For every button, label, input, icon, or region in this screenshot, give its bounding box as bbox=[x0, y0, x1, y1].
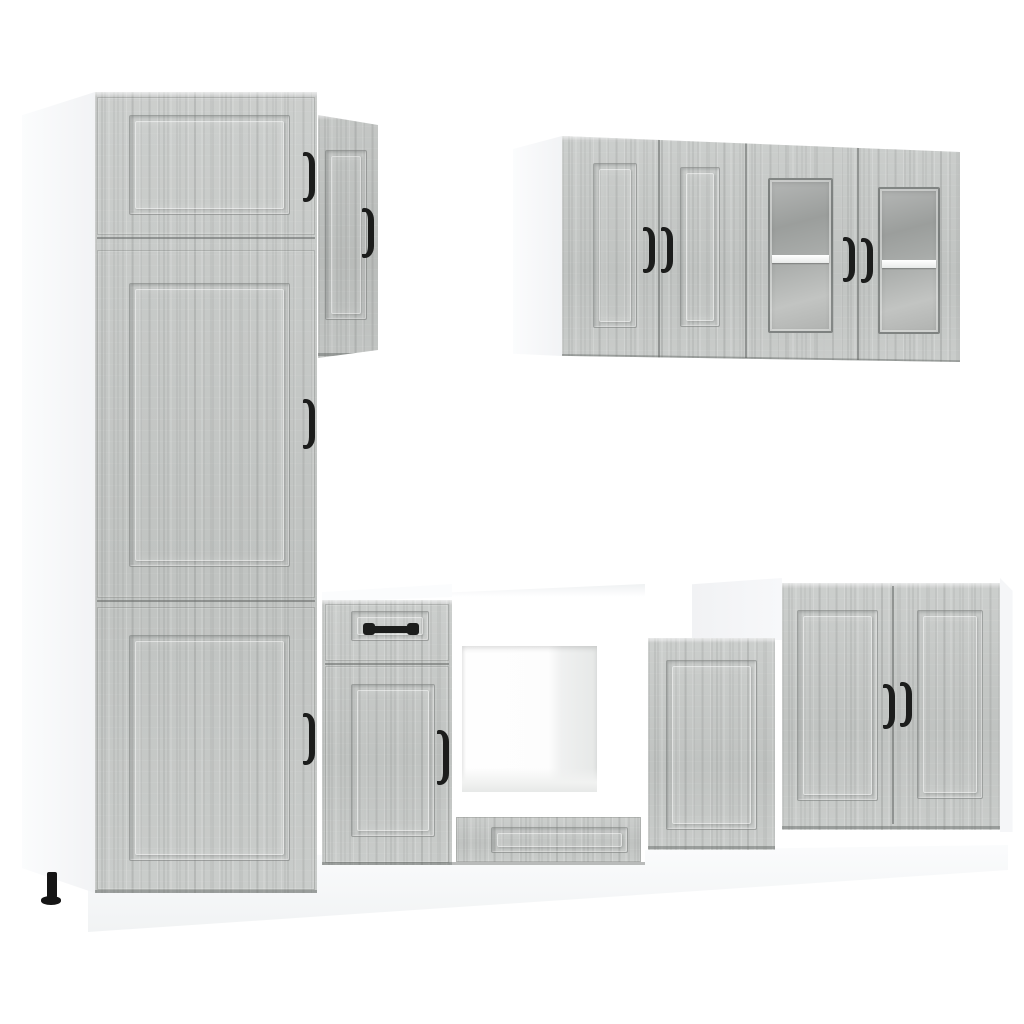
glass-door-2-shelf bbox=[882, 260, 936, 268]
adjustable-foot bbox=[40, 872, 62, 910]
small-cabinet-recessed-panel bbox=[666, 660, 757, 830]
side-wall-cabinet-bottom-edge bbox=[318, 353, 378, 356]
base-door-recessed-panel bbox=[351, 684, 435, 837]
middle-door-handle bbox=[303, 399, 315, 449]
drawer-front bbox=[325, 604, 449, 661]
base-drawer-cabinet-bottom-edge bbox=[322, 862, 452, 865]
wall-door-1-recessed-panel bbox=[593, 163, 637, 328]
drawer-door-gap bbox=[325, 663, 449, 665]
side-wall-cabinet-top-edge bbox=[318, 115, 378, 120]
tall-cabinet-bottom-door bbox=[97, 607, 315, 890]
left-door-recessed-panel bbox=[797, 610, 878, 801]
wall-door-2-recessed-panel bbox=[680, 167, 720, 327]
tall-cabinet-side-panel bbox=[22, 92, 95, 893]
double-door-cabinet-top-edge bbox=[782, 583, 1000, 588]
double-door-cabinet-bottom-edge bbox=[782, 826, 1000, 829]
small-base-cabinet bbox=[648, 638, 775, 850]
base-door-handle bbox=[437, 730, 449, 785]
kitchen-cabinet-set-photo bbox=[0, 0, 1024, 1024]
middle-door-recessed-panel bbox=[129, 283, 290, 567]
side-door-handle bbox=[362, 208, 374, 258]
wall-cabinet-side-panel bbox=[513, 136, 562, 356]
small-base-cabinet-top-edge bbox=[648, 638, 775, 643]
backboard-panel bbox=[692, 578, 782, 640]
door-gap bbox=[97, 600, 315, 602]
glass-door-1-pane bbox=[768, 178, 833, 333]
double-door-base-cabinet bbox=[782, 583, 1000, 830]
small-base-cabinet-bottom-edge bbox=[648, 846, 775, 849]
base-drawer-cabinet-door bbox=[325, 666, 449, 863]
door-gap bbox=[658, 138, 660, 358]
wall-door-1-handle bbox=[643, 227, 655, 273]
side-wall-cabinet bbox=[318, 115, 378, 358]
glass-door-2-pane bbox=[878, 187, 940, 334]
door-gap bbox=[745, 140, 747, 358]
oven-housing-drawer bbox=[456, 817, 641, 862]
door-gap bbox=[97, 237, 315, 239]
oven-housing-top-face bbox=[452, 584, 645, 597]
tall-cabinet-bottom-edge bbox=[95, 890, 317, 893]
bottom-door-recessed-panel bbox=[129, 635, 290, 861]
door-gap bbox=[857, 144, 859, 360]
tall-cabinet-middle-door bbox=[97, 250, 315, 598]
wall-cabinet-top-edge bbox=[562, 136, 960, 141]
wall-cabinet-front bbox=[562, 136, 960, 362]
foot-stem bbox=[47, 872, 57, 898]
base-cabinet-side-panel bbox=[1000, 578, 1014, 832]
tall-cabinet-top-door bbox=[97, 97, 315, 235]
base-drawer-cabinet bbox=[322, 600, 452, 865]
oven-housing-unit bbox=[452, 584, 645, 865]
wall-cabinet-bottom-edge bbox=[562, 354, 960, 363]
right-door-handle bbox=[900, 682, 912, 727]
right-door-recessed-panel bbox=[917, 610, 983, 799]
glass-door-1-shelf bbox=[772, 255, 829, 263]
top-door-recessed-panel bbox=[129, 115, 290, 215]
oven-housing-bottom-edge bbox=[452, 862, 645, 865]
top-door-handle bbox=[303, 152, 315, 202]
tall-cabinet-front bbox=[95, 92, 317, 893]
wall-door-2-handle bbox=[661, 227, 673, 273]
bottom-door-handle bbox=[303, 713, 315, 765]
oven-bay-floor bbox=[462, 768, 597, 792]
glass-door-2-handle bbox=[861, 238, 873, 283]
side-door-recessed-panel bbox=[325, 150, 367, 320]
oven-drawer-recessed-groove bbox=[491, 827, 628, 853]
foot-base bbox=[41, 896, 61, 905]
drawer-handle bbox=[366, 626, 416, 633]
left-door-handle bbox=[883, 684, 895, 729]
glass-door-1-handle bbox=[843, 237, 855, 282]
oven-bay-opening bbox=[462, 646, 597, 792]
